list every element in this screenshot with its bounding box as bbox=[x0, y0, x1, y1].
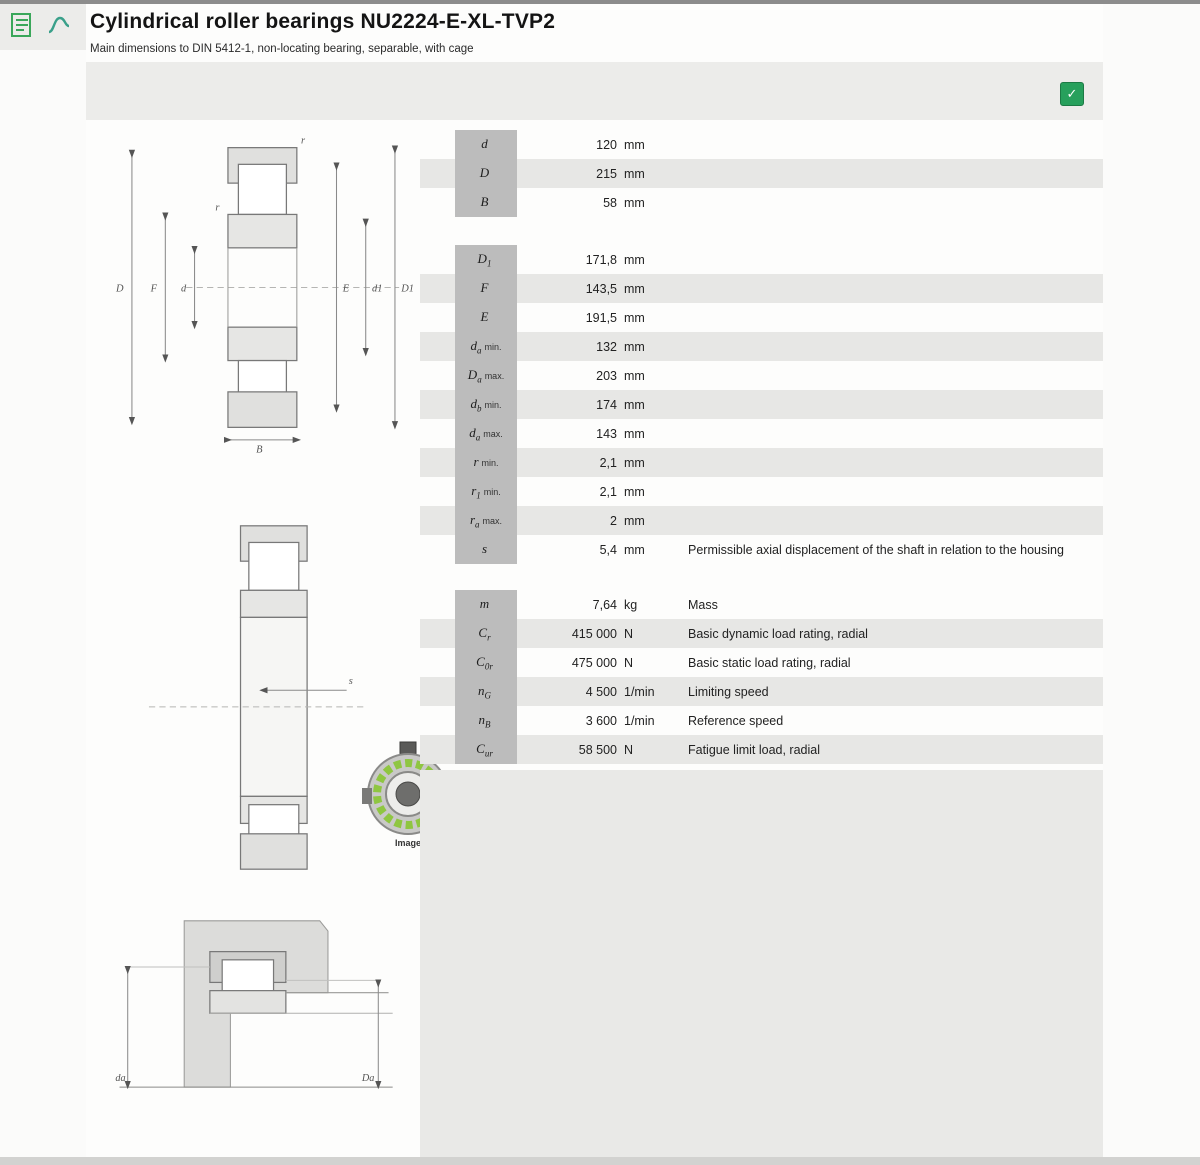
row-value: 171,8 bbox=[517, 253, 617, 267]
table-row: Cr 415 000 N Basic dynamic load rating, … bbox=[420, 619, 1103, 648]
dim-label-E: E bbox=[342, 284, 350, 295]
row-label: r1min. bbox=[455, 477, 517, 506]
row-label: damin. bbox=[455, 332, 517, 361]
row-label: dbmin. bbox=[455, 390, 517, 419]
row-description: Basic static load rating, radial bbox=[676, 656, 1103, 670]
toolbar-band bbox=[86, 62, 1103, 120]
row-unit: N bbox=[617, 743, 676, 757]
performance-data-table: m 7,64 kg Mass Cr 415 000 N Basic dynami… bbox=[420, 590, 1103, 764]
mounting-drawing: da Da bbox=[86, 890, 420, 1157]
table-row: d 120 mm bbox=[420, 130, 1103, 159]
row-value: 58 bbox=[517, 196, 617, 210]
table-row: nG 4 500 1/min Limiting speed bbox=[420, 677, 1103, 706]
table-row: r1min. 2,1 mm bbox=[420, 477, 1103, 506]
row-label: d bbox=[455, 130, 517, 159]
cross-section-svg: D F d E d1 D1 r r B bbox=[86, 120, 420, 455]
row-label: B bbox=[455, 188, 517, 217]
row-unit: mm bbox=[617, 167, 676, 181]
row-unit: kg bbox=[617, 598, 676, 612]
page-title: Cylindrical roller bearings NU2224-E-XL-… bbox=[90, 10, 555, 34]
row-unit: mm bbox=[617, 138, 676, 152]
product-page: Cylindrical roller bearings NU2224-E-XL-… bbox=[0, 0, 1200, 1165]
table-row: ramax. 2 mm bbox=[420, 506, 1103, 535]
row-value: 415 000 bbox=[517, 627, 617, 641]
row-unit: mm bbox=[617, 369, 676, 383]
row-value: 143,5 bbox=[517, 282, 617, 296]
dim-label-D1: D1 bbox=[400, 284, 414, 295]
row-label: Damax. bbox=[455, 361, 517, 390]
table-row: Damax. 203 mm bbox=[420, 361, 1103, 390]
table-row: Cur 58 500 N Fatigue limit load, radial bbox=[420, 735, 1103, 764]
row-description: Fatigue limit load, radial bbox=[676, 743, 1103, 757]
row-label: m bbox=[455, 590, 517, 619]
row-value: 191,5 bbox=[517, 311, 617, 325]
row-unit: mm bbox=[617, 427, 676, 441]
row-value: 120 bbox=[517, 138, 617, 152]
row-unit: N bbox=[617, 627, 676, 641]
table-row: damax. 143 mm bbox=[420, 419, 1103, 448]
row-value: 5,4 bbox=[517, 543, 617, 557]
table-row: B 58 mm bbox=[420, 188, 1103, 217]
row-value: 203 bbox=[517, 369, 617, 383]
row-label: ramax. bbox=[455, 506, 517, 535]
bearing-cross-section-drawing: D F d E d1 D1 r r B bbox=[86, 120, 420, 455]
row-label: rmin. bbox=[455, 448, 517, 477]
row-value: 143 bbox=[517, 427, 617, 441]
download-datasheet-button[interactable]: ✓ bbox=[1060, 82, 1084, 106]
bottom-border bbox=[0, 1157, 1200, 1165]
table-row: nB 3 600 1/min Reference speed bbox=[420, 706, 1103, 735]
table-row: rmin. 2,1 mm bbox=[420, 448, 1103, 477]
dim-label-r: r bbox=[301, 135, 306, 146]
row-label: D1 bbox=[455, 245, 517, 274]
row-unit: mm bbox=[617, 196, 676, 210]
row-value: 2,1 bbox=[517, 456, 617, 470]
dim-label-Da: Da bbox=[361, 1073, 375, 1084]
page-subtitle: Main dimensions to DIN 5412-1, non-locat… bbox=[90, 43, 474, 55]
row-value: 7,64 bbox=[517, 598, 617, 612]
row-value: 4 500 bbox=[517, 685, 617, 699]
row-unit: mm bbox=[617, 253, 676, 267]
dim-label-d1: d1 bbox=[372, 284, 382, 295]
row-description: Mass bbox=[676, 598, 1103, 612]
row-label: nG bbox=[455, 677, 517, 706]
row-unit: mm bbox=[617, 282, 676, 296]
row-unit: N bbox=[617, 656, 676, 670]
table-row: dbmin. 174 mm bbox=[420, 390, 1103, 419]
row-value: 132 bbox=[517, 340, 617, 354]
row-value: 475 000 bbox=[517, 656, 617, 670]
dim-label-D: D bbox=[115, 284, 124, 295]
table-row: D1 171,8 mm bbox=[420, 245, 1103, 274]
row-description: Permissible axial displacement of the sh… bbox=[676, 543, 1103, 557]
dim-label-s: s bbox=[349, 676, 353, 687]
row-value: 215 bbox=[517, 167, 617, 181]
row-label: Cr bbox=[455, 619, 517, 648]
table-row: C0r 475 000 N Basic static load rating, … bbox=[420, 648, 1103, 677]
row-label: s bbox=[455, 535, 517, 564]
table-row: s 5,4 mm Permissible axial displacement … bbox=[420, 535, 1103, 564]
row-description: Basic dynamic load rating, radial bbox=[676, 627, 1103, 641]
row-unit: mm bbox=[617, 311, 676, 325]
dim-label-F: F bbox=[150, 284, 158, 295]
row-label: C0r bbox=[455, 648, 517, 677]
table-row: F 143,5 mm bbox=[420, 274, 1103, 303]
row-description: Limiting speed bbox=[676, 685, 1103, 699]
mounting-svg: da Da bbox=[86, 890, 420, 1157]
table-row: D 215 mm bbox=[420, 159, 1103, 188]
datasheet-icon[interactable] bbox=[9, 12, 35, 38]
row-label: F bbox=[455, 274, 517, 303]
main-dimensions-table: d 120 mm D 215 mm B 58 mm bbox=[420, 130, 1103, 217]
dim-label-d: d bbox=[181, 284, 187, 295]
row-label: Cur bbox=[455, 735, 517, 764]
row-unit: mm bbox=[617, 398, 676, 412]
row-description: Reference speed bbox=[676, 714, 1103, 728]
row-label: E bbox=[455, 303, 517, 332]
row-value: 2 bbox=[517, 514, 617, 528]
row-unit: mm bbox=[617, 340, 676, 354]
detail-dimensions-table: D1 171,8 mm F 143,5 mm E 191,5 mm damin.… bbox=[420, 245, 1103, 564]
dim-label-da: da bbox=[115, 1073, 125, 1084]
row-label: nB bbox=[455, 706, 517, 735]
row-value: 58 500 bbox=[517, 743, 617, 757]
row-unit: mm bbox=[617, 485, 676, 499]
row-unit: 1/min bbox=[617, 685, 676, 699]
row-unit: 1/min bbox=[617, 714, 676, 728]
load-curve-icon[interactable] bbox=[46, 12, 72, 38]
row-label: D bbox=[455, 159, 517, 188]
row-label: damax. bbox=[455, 419, 517, 448]
row-value: 3 600 bbox=[517, 714, 617, 728]
dim-label-B: B bbox=[256, 444, 263, 455]
lower-background-panel bbox=[420, 770, 1103, 1157]
row-unit: mm bbox=[617, 456, 676, 470]
row-value: 2,1 bbox=[517, 485, 617, 499]
row-value: 174 bbox=[517, 398, 617, 412]
table-row: E 191,5 mm bbox=[420, 303, 1103, 332]
table-row: m 7,64 kg Mass bbox=[420, 590, 1103, 619]
table-row: damin. 132 mm bbox=[420, 332, 1103, 361]
row-unit: mm bbox=[617, 514, 676, 528]
row-unit: mm bbox=[617, 543, 676, 557]
dim-label-r2: r bbox=[215, 202, 220, 213]
